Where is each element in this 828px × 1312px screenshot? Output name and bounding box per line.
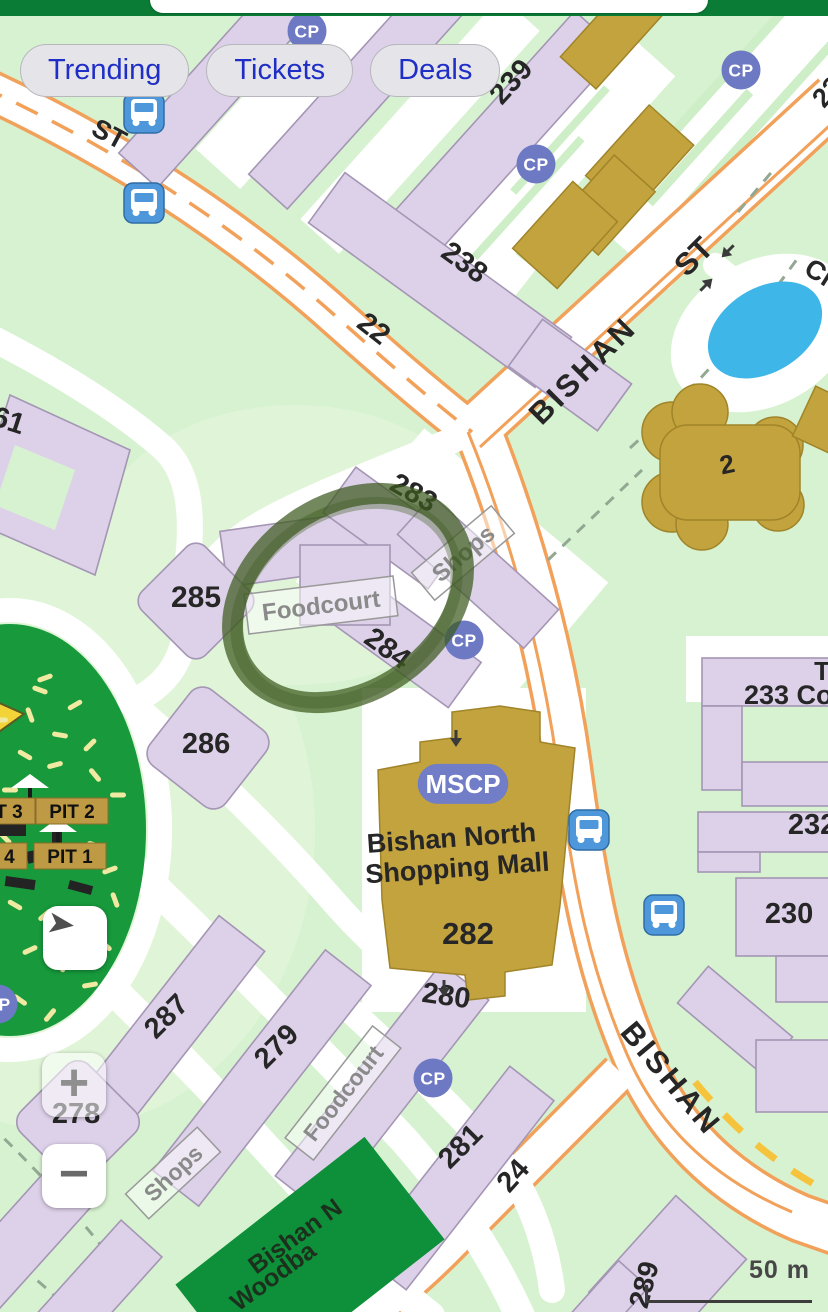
zoom-out-button[interactable]: − [42, 1144, 106, 1208]
search-bar[interactable] [150, 0, 708, 13]
pit-label: PIT 4 [0, 843, 27, 869]
svg-text:PIT 1: PIT 1 [47, 847, 93, 868]
bus-stop-icon[interactable] [569, 810, 609, 850]
carpark-icon[interactable]: CP [722, 51, 761, 90]
carpark-icon[interactable]: CP [414, 1059, 453, 1098]
svg-text:PIT 4: PIT 4 [0, 847, 15, 868]
top-bar [0, 0, 828, 16]
map-canvas[interactable]: PIT 3PIT 2PIT 4PIT 1 [0, 0, 828, 1312]
navigation-arrow-icon [43, 906, 79, 942]
map-label: 233 Co [744, 680, 828, 710]
map-label: MSCP [425, 769, 500, 799]
pit-label: PIT 3 [0, 798, 35, 824]
map-label: 285 [171, 581, 221, 614]
map-app-screen: PIT 3PIT 2PIT 4PIT 1 [0, 0, 828, 1312]
pit-label: PIT 2 [36, 798, 108, 824]
bus-stop-icon[interactable] [124, 93, 164, 133]
park-dash [110, 793, 126, 798]
bus-stop-icon[interactable] [644, 895, 684, 935]
svg-text:CP: CP [523, 155, 548, 175]
svg-text:CP: CP [420, 1069, 445, 1089]
map-label: 232 [788, 809, 828, 841]
chip-tickets[interactable]: Tickets [206, 44, 353, 97]
carpark-icon[interactable]: CP [517, 145, 556, 184]
map-label: 280 [420, 977, 472, 1015]
svg-text:CP: CP [451, 631, 476, 651]
pit-label: PIT 1 [34, 843, 106, 869]
bus-stop-icon[interactable] [124, 183, 164, 223]
svg-text:PIT 3: PIT 3 [0, 802, 23, 823]
filter-chips: TrendingTicketsDeals [20, 44, 500, 97]
park-dash [0, 718, 8, 723]
map-label: 286 [182, 728, 230, 760]
plus-icon: + [59, 1057, 89, 1109]
scale-label: 50 m [645, 1256, 812, 1285]
svg-text:CP: CP [294, 22, 319, 42]
minus-icon: − [59, 1148, 89, 1200]
map-label: 230 [765, 898, 813, 930]
svg-text:PIT 2: PIT 2 [49, 802, 94, 823]
park-dash [2, 788, 18, 793]
scale-bar: 50 m [645, 1256, 812, 1303]
zoom-in-button[interactable]: + [42, 1053, 106, 1117]
svg-text:CP: CP [0, 995, 11, 1015]
scale-line [645, 1285, 812, 1303]
map-label: 282 [442, 916, 494, 951]
locate-button[interactable] [43, 906, 107, 970]
chip-deals[interactable]: Deals [370, 44, 500, 97]
chip-trending[interactable]: Trending [20, 44, 189, 97]
svg-text:CP: CP [728, 61, 753, 81]
